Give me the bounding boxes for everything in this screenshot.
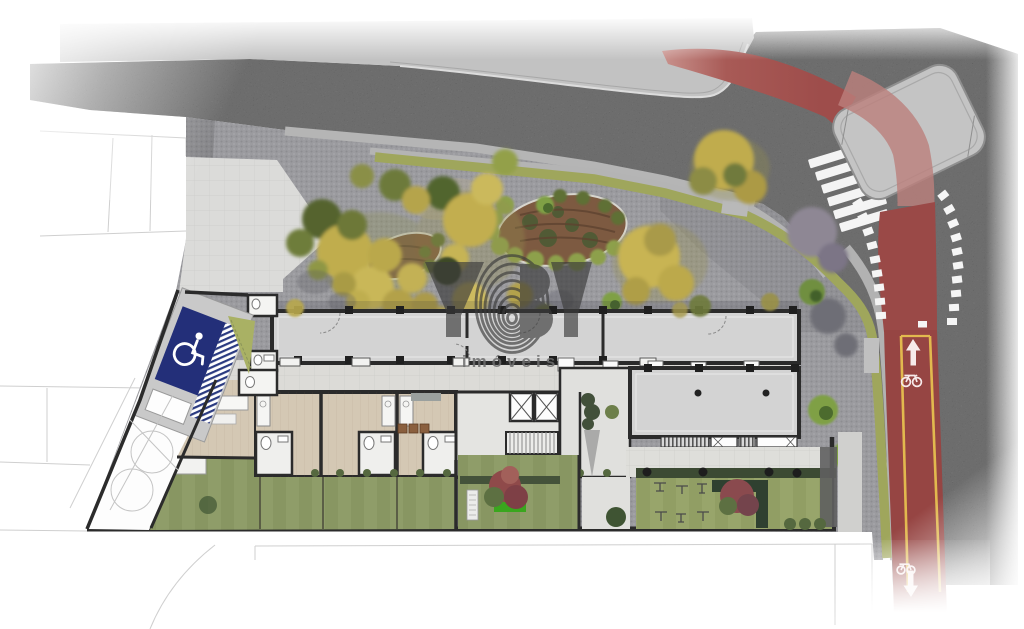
svg-text:imóveis: imóveis — [462, 352, 560, 371]
